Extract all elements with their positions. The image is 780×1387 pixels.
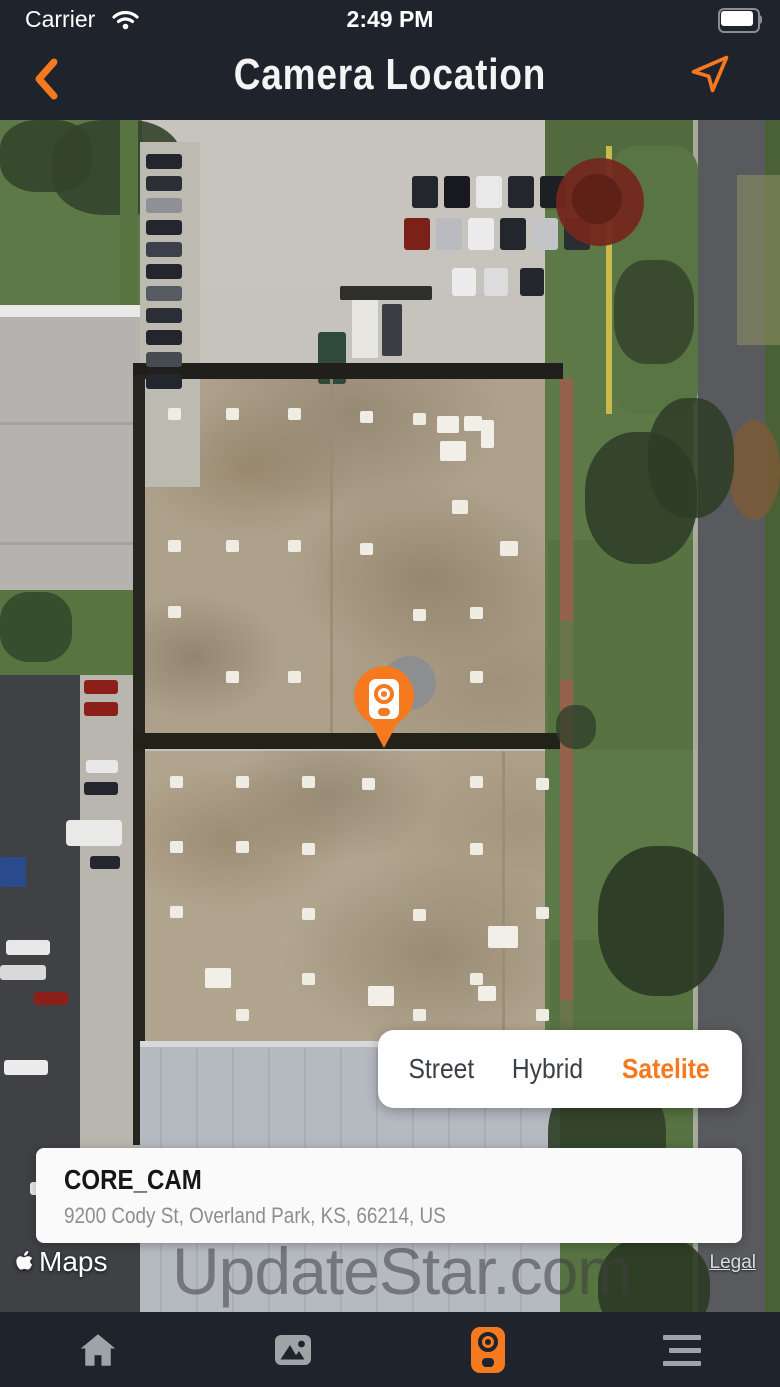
status-bar: Carrier 2:49 PM (0, 0, 780, 40)
tab-menu[interactable] (585, 1312, 780, 1387)
map-feature (170, 906, 183, 918)
map-feature (330, 379, 333, 733)
battery-icon (718, 8, 764, 31)
map-feature (470, 776, 483, 788)
satellite-map[interactable]: Street Hybrid Satelite UpdateStar.com CO… (0, 120, 780, 1312)
map-feature (205, 968, 231, 988)
map-type-selector: Street Hybrid Satelite (378, 1030, 742, 1108)
map-feature (168, 606, 181, 618)
camera-pin[interactable] (348, 656, 428, 756)
location-arrow-icon (688, 52, 732, 96)
map-feature (170, 841, 183, 853)
map-feature (302, 908, 315, 920)
map-feature (236, 776, 249, 788)
map-feature (437, 416, 459, 433)
clock: 2:49 PM (0, 6, 780, 33)
map-feature (146, 220, 182, 235)
map-feature (288, 408, 301, 420)
map-feature (6, 940, 50, 955)
map-feature (648, 398, 734, 518)
map-feature (133, 375, 145, 1145)
map-feature (0, 422, 140, 425)
map-feature (236, 1009, 249, 1021)
map-feature (728, 420, 780, 520)
map-feature (382, 304, 402, 356)
map-feature (478, 986, 496, 1001)
camera-name: CORE_CAM (64, 1164, 224, 1196)
camera-icon (471, 1327, 505, 1373)
map-type-satellite[interactable]: Satelite (616, 1053, 716, 1085)
map-feature (0, 592, 72, 662)
map-feature (236, 841, 249, 853)
map-feature (0, 542, 140, 545)
map-feature (86, 760, 118, 773)
map-building-roof (143, 751, 560, 1041)
map-feature (34, 992, 68, 1005)
camera-glyph (369, 679, 399, 719)
map-feature (484, 268, 508, 296)
map-feature (476, 176, 502, 208)
map-feature (170, 776, 183, 788)
map-feature (168, 408, 181, 420)
map-feature (4, 1060, 48, 1075)
map-feature (0, 965, 46, 980)
camera-address: 9200 Cody St, Overland Park, KS, 66214, … (64, 1203, 508, 1229)
map-feature (288, 540, 301, 552)
apple-icon (14, 1249, 36, 1275)
map-feature (84, 680, 118, 694)
map-feature (520, 268, 544, 296)
map-feature (302, 843, 315, 855)
map-feature (340, 286, 432, 300)
map-feature (470, 607, 483, 619)
map-feature (146, 352, 182, 367)
map-feature (500, 541, 518, 556)
map-feature (90, 856, 120, 869)
map-feature (470, 671, 483, 683)
camera-info-card: CORE_CAM 9200 Cody St, Overland Park, KS… (36, 1148, 742, 1243)
map-feature (413, 909, 426, 921)
map-feature (146, 330, 182, 345)
map-feature (532, 218, 558, 250)
map-feature (84, 782, 118, 795)
map-feature (737, 175, 780, 345)
map-feature (470, 973, 483, 985)
map-feature (560, 620, 573, 680)
map-type-street[interactable]: Street (404, 1053, 479, 1085)
map-feature (146, 176, 182, 191)
map-feature (0, 305, 140, 317)
map-feature (536, 1009, 549, 1021)
tab-gallery[interactable] (195, 1312, 390, 1387)
map-feature (352, 300, 378, 358)
page-title: Camera Location (0, 50, 780, 100)
map-feature (452, 500, 468, 514)
map-feature (413, 413, 426, 425)
map-feature (133, 363, 563, 379)
map-feature (452, 268, 476, 296)
map-feature (500, 218, 526, 250)
map-feature (488, 926, 518, 948)
map-feature (572, 174, 622, 224)
app-screen: Carrier 2:49 PM Camera Location (0, 0, 780, 1387)
gallery-icon (274, 1334, 312, 1366)
send-location-button[interactable] (688, 52, 732, 100)
map-feature (502, 751, 505, 1041)
tab-camera[interactable] (390, 1312, 585, 1387)
map-feature (302, 776, 315, 788)
menu-icon (663, 1332, 703, 1368)
map-type-hybrid[interactable]: Hybrid (507, 1053, 588, 1085)
maps-attribution: Maps (14, 1246, 107, 1278)
map-feature (470, 843, 483, 855)
map-feature (444, 176, 470, 208)
map-feature (436, 218, 462, 250)
map-feature (413, 1009, 426, 1021)
map-feature (146, 374, 182, 389)
map-feature (226, 540, 239, 552)
nav-bar: Camera Location (0, 40, 780, 120)
map-feature (288, 671, 301, 683)
map-feature (536, 907, 549, 919)
map-feature (360, 411, 373, 423)
map-feature (404, 218, 430, 250)
map-feature (226, 671, 239, 683)
map-feature (360, 543, 373, 555)
map-feature (84, 702, 118, 716)
map-feature (146, 286, 182, 301)
map-feature (440, 441, 466, 461)
map-feature (0, 857, 26, 887)
map-feature (536, 778, 549, 790)
map-feature (226, 408, 239, 420)
map-feature (146, 308, 182, 323)
map-feature (168, 540, 181, 552)
home-icon (80, 1333, 116, 1367)
tab-bar (0, 1312, 780, 1387)
map-feature (481, 420, 494, 448)
map-feature (412, 176, 438, 208)
map-feature (468, 218, 494, 250)
map-feature (146, 242, 182, 257)
map-feature (614, 260, 694, 364)
map-feature (598, 846, 724, 996)
map-feature (146, 198, 182, 213)
legal-link[interactable]: Legal (710, 1252, 757, 1274)
map-feature (302, 973, 315, 985)
map-feature (66, 820, 122, 846)
map-feature (146, 264, 182, 279)
map-feature (413, 609, 426, 621)
map-feature (78, 675, 140, 1180)
map-feature (508, 176, 534, 208)
map-feature (464, 416, 482, 431)
map-feature (368, 986, 394, 1006)
tab-home[interactable] (0, 1312, 195, 1387)
watermark: UpdateStar.com (172, 1238, 631, 1304)
map-feature (556, 705, 596, 749)
map-feature (0, 305, 140, 595)
map-feature (362, 778, 375, 790)
map-feature (146, 154, 182, 169)
